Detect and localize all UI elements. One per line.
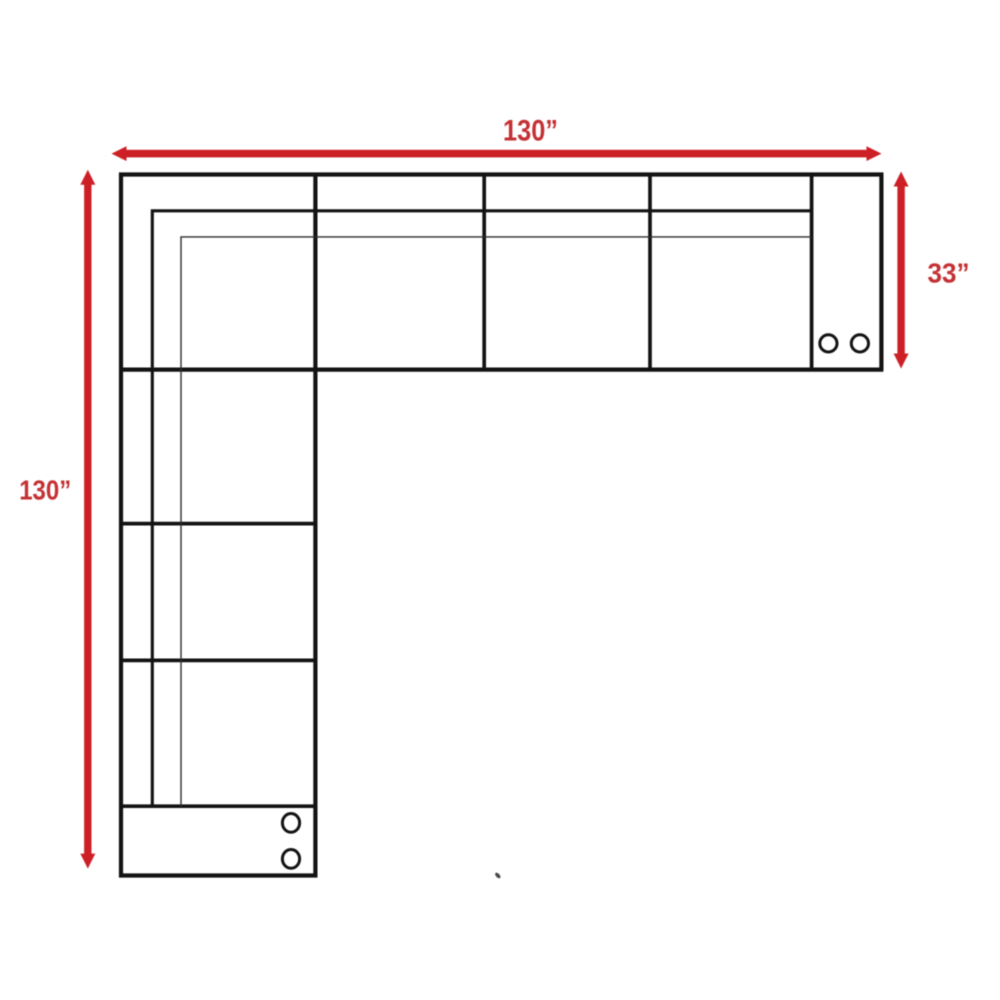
svg-text:33”: 33” (928, 258, 970, 289)
svg-text:130”: 130” (19, 475, 71, 506)
svg-text:130”: 130” (503, 115, 558, 148)
